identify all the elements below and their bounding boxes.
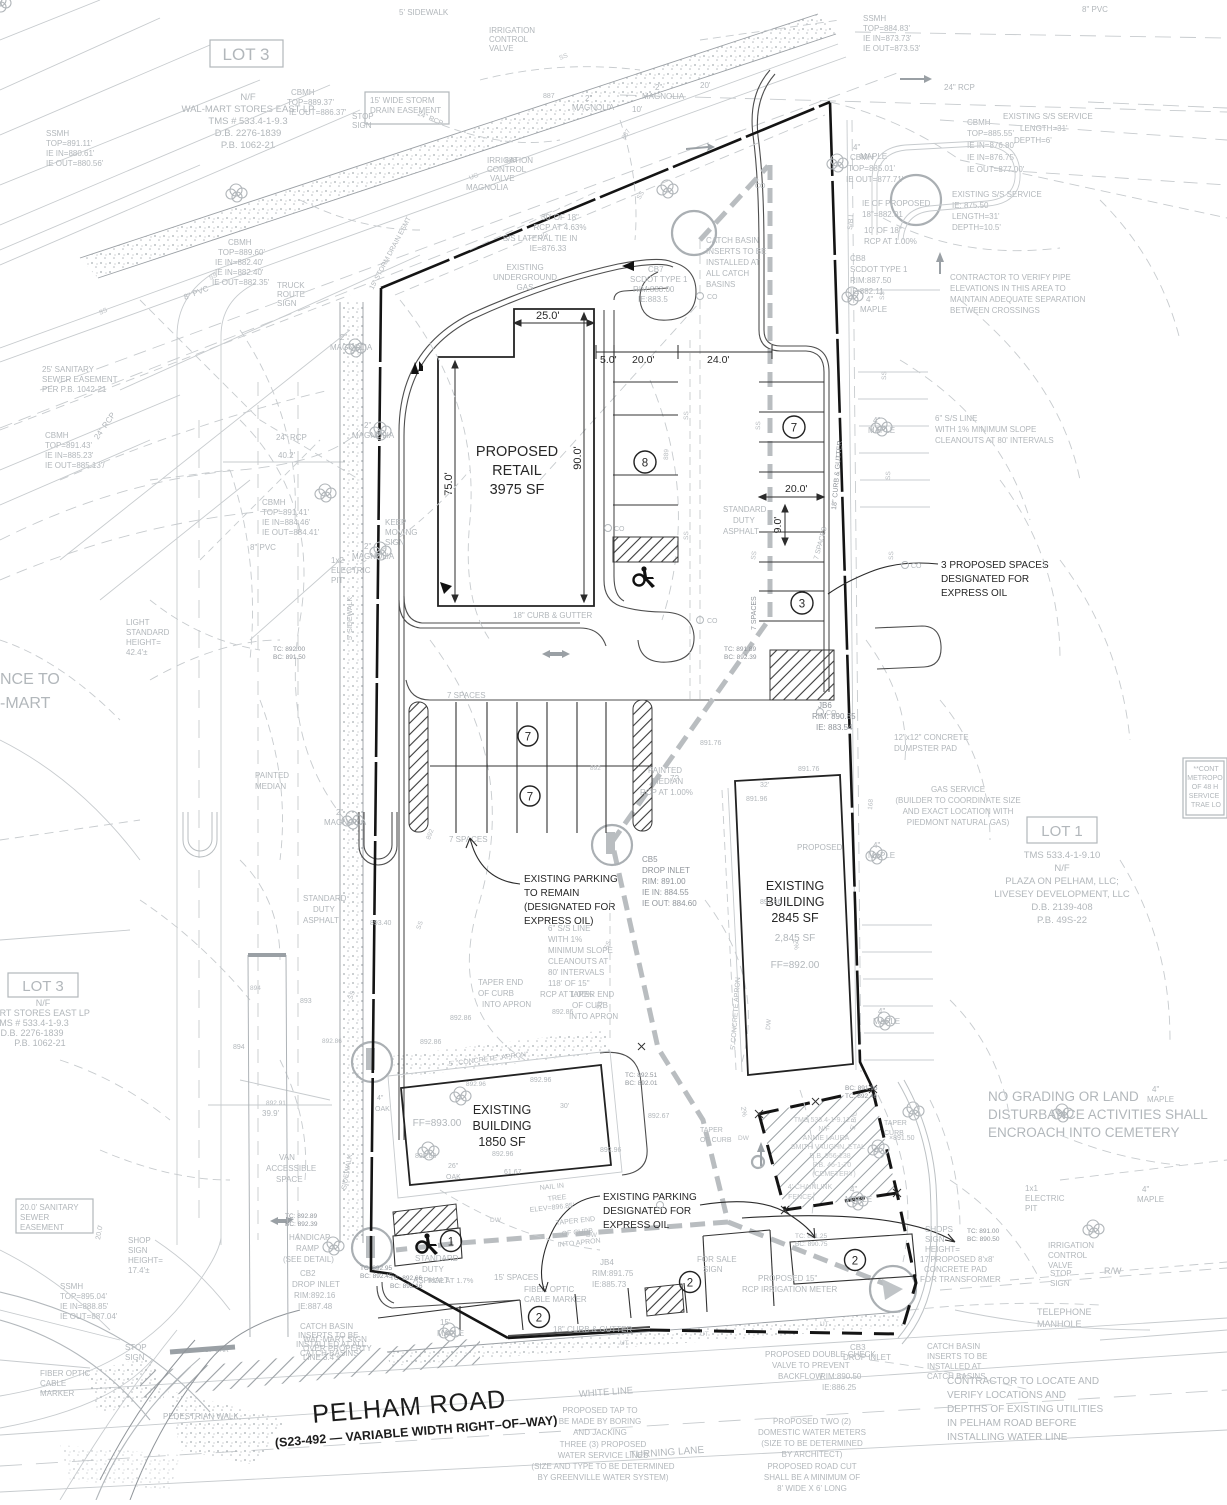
svg-text:24" RCP: 24" RCP xyxy=(944,83,975,92)
svg-text:EXISTING: EXISTING xyxy=(506,263,543,272)
svg-text:SSMH: SSMH xyxy=(46,129,69,138)
svg-text:TAPER END: TAPER END xyxy=(569,990,614,999)
svg-text:892.86: 892.86 xyxy=(420,1039,442,1046)
svg-text:1850 SF: 1850 SF xyxy=(478,1135,526,1149)
svg-text:892.67: 892.67 xyxy=(648,1113,670,1120)
svg-text:7 SPACES: 7 SPACES xyxy=(751,596,758,630)
svg-text:12"x12" CONCRETE: 12"x12" CONCRETE xyxy=(894,733,969,742)
svg-text:LINE 3.4'±: LINE 3.4'± xyxy=(303,1353,341,1362)
svg-text:75.0': 75.0' xyxy=(443,472,455,496)
svg-text:BC: 890.75: BC: 890.75 xyxy=(795,1241,828,1248)
svg-text:CATCH BASIN: CATCH BASIN xyxy=(706,236,759,245)
svg-text:GAS SERVICE: GAS SERVICE xyxy=(931,785,985,794)
svg-text:CATCH BASIN: CATCH BASIN xyxy=(927,1342,980,1351)
svg-text:DUTY: DUTY xyxy=(422,1265,444,1274)
svg-text:STOP: STOP xyxy=(1050,1269,1072,1278)
svg-text:PIEDMONT NATURAL GAS): PIEDMONT NATURAL GAS) xyxy=(907,818,1010,827)
svg-text:MAPLE: MAPLE xyxy=(868,426,895,435)
svg-text:2: 2 xyxy=(687,1278,693,1290)
svg-text:P.B. 1062-21: P.B. 1062-21 xyxy=(14,1038,65,1048)
svg-text:STOP: STOP xyxy=(125,1343,147,1352)
svg-text:PROPOSED: PROPOSED xyxy=(476,444,558,460)
svg-text:7 SPACES: 7 SPACES xyxy=(447,691,486,700)
svg-text:887: 887 xyxy=(543,93,555,100)
svg-text:JB4: JB4 xyxy=(600,1258,614,1267)
svg-text:UT: UT xyxy=(820,1321,829,1328)
svg-text:ENCROACH INTO CEMETERY: ENCROACH INTO CEMETERY xyxy=(988,1125,1180,1140)
svg-text:DUTY: DUTY xyxy=(733,516,755,525)
svg-text:TMS # 533.4-1-9.3: TMS # 533.4-1-9.3 xyxy=(208,116,287,127)
svg-text:IE IN=885.23': IE IN=885.23' xyxy=(45,451,94,460)
svg-text:ASPHALT: ASPHALT xyxy=(303,916,339,925)
svg-text:PAINTED: PAINTED xyxy=(255,771,289,780)
svg-text:4' CHAINLINK: 4' CHAINLINK xyxy=(788,1184,833,1191)
svg-text:40.2': 40.2' xyxy=(278,451,296,460)
svg-text:CBMH: CBMH xyxy=(262,498,286,507)
svg-text:MAPLE: MAPLE xyxy=(860,152,887,161)
svg-text:GAS: GAS xyxy=(517,283,534,292)
svg-text:PROPOSED TAP TO: PROPOSED TAP TO xyxy=(562,1406,637,1415)
svg-text:10': 10' xyxy=(632,105,643,114)
svg-text:894: 894 xyxy=(233,1044,245,1051)
svg-text:OVER PROPERTY: OVER PROPERTY xyxy=(303,1344,372,1353)
svg-text:SS: SS xyxy=(879,290,886,300)
svg-text:THREE (3) PROPOSED: THREE (3) PROPOSED xyxy=(560,1440,647,1449)
svg-text:FF=893.00: FF=893.00 xyxy=(413,1118,462,1129)
svg-text:N/F: N/F xyxy=(1054,863,1070,874)
svg-text:OAK: OAK xyxy=(375,1106,390,1113)
svg-text:FIBER OPTIC: FIBER OPTIC xyxy=(524,1285,574,1294)
svg-text:TOP=891.11': TOP=891.11' xyxy=(46,139,93,148)
svg-text:WITH 1% MINIMUM SLOPE: WITH 1% MINIMUM SLOPE xyxy=(935,425,1036,434)
svg-text:(SEE DETAIL): (SEE DETAIL) xyxy=(283,1255,334,1264)
svg-text:STANDARD: STANDARD xyxy=(415,1254,459,1263)
svg-text:CO: CO xyxy=(707,294,718,301)
svg-text:892: 892 xyxy=(590,765,601,772)
svg-text:TOP=891.41': TOP=891.41' xyxy=(262,508,309,517)
svg-text:18"=882.01: 18"=882.01 xyxy=(862,210,903,219)
svg-text:IE IN=876.80': IE IN=876.80' xyxy=(967,141,1016,150)
svg-text:8: 8 xyxy=(642,458,648,470)
svg-text:RIM:890.50: RIM:890.50 xyxy=(820,1372,862,1381)
svg-text:2": 2" xyxy=(364,421,371,430)
svg-text:PROPOSED TWO (2): PROPOSED TWO (2) xyxy=(773,1417,851,1426)
svg-text:IE IN: 884.55: IE IN: 884.55 xyxy=(642,888,689,897)
svg-text:8" PVC: 8" PVC xyxy=(1082,5,1108,14)
svg-text:CB3: CB3 xyxy=(850,1343,866,1352)
svg-text:BC: 890.50: BC: 890.50 xyxy=(967,1236,1000,1243)
svg-text:5.0': 5.0' xyxy=(600,354,617,366)
svg-text:42.4'±: 42.4'± xyxy=(126,648,148,657)
svg-text:PER P.B. 1042-21: PER P.B. 1042-21 xyxy=(42,385,107,394)
svg-text:17'PROPOSED 8'x8': 17'PROPOSED 8'x8' xyxy=(920,1255,994,1264)
svg-text:BC: 891.50: BC: 891.50 xyxy=(273,654,306,661)
svg-text:RIM:888.00: RIM:888.00 xyxy=(633,285,675,294)
svg-text:MAPLE: MAPLE xyxy=(1147,1095,1174,1104)
svg-text:TELEPHONE: TELEPHONE xyxy=(1037,1307,1092,1317)
svg-text:RCP AT 1.00%: RCP AT 1.00% xyxy=(864,237,917,246)
svg-text:S/B L: S/B L xyxy=(847,212,855,230)
svg-text:MAGNOLIA: MAGNOLIA xyxy=(642,92,685,101)
svg-text:1x2: 1x2 xyxy=(331,556,344,565)
svg-text:BC: 892.45: BC: 892.45 xyxy=(360,1273,393,1280)
svg-text:IE:886.25: IE:886.25 xyxy=(822,1383,857,1392)
svg-text:IE OUT=882.35': IE OUT=882.35' xyxy=(212,278,270,287)
svg-text:SS: SS xyxy=(881,370,888,380)
svg-text:SHOP: SHOP xyxy=(128,1236,151,1245)
svg-text:2845 SF: 2845 SF xyxy=(771,911,819,925)
svg-text:TC: 891.89: TC: 891.89 xyxy=(724,646,757,653)
svg-text:CONTRACTOR TO VERIFY PIPE: CONTRACTOR TO VERIFY PIPE xyxy=(950,273,1071,282)
svg-text:DEPTH=10.5': DEPTH=10.5' xyxy=(952,223,1001,232)
svg-text:892.96: 892.96 xyxy=(466,1081,486,1088)
svg-text:25.0': 25.0' xyxy=(536,310,560,322)
svg-text:7: 7 xyxy=(525,732,531,744)
svg-text:INSERTS TO BE: INSERTS TO BE xyxy=(927,1352,987,1361)
svg-text:D.B. 2139-408: D.B. 2139-408 xyxy=(1031,902,1092,913)
svg-text:ELECTRIC: ELECTRIC xyxy=(331,566,371,575)
svg-text:61.67: 61.67 xyxy=(504,1169,522,1176)
svg-text:KEEP: KEEP xyxy=(385,518,406,527)
svg-text:SIGN: SIGN xyxy=(125,1353,145,1362)
svg-text:N/F: N/F xyxy=(818,1126,829,1133)
svg-text:CO: CO xyxy=(911,563,922,570)
svg-text:RIM:887.50: RIM:887.50 xyxy=(850,276,892,285)
svg-text:SCDOT TYPE 1: SCDOT TYPE 1 xyxy=(850,265,908,274)
svg-text:894: 894 xyxy=(250,985,261,992)
svg-text:UNDERGROUND: UNDERGROUND xyxy=(493,273,557,282)
svg-text:TC: 892.89: TC: 892.89 xyxy=(285,1213,318,1220)
svg-text:BY ARCHITECT): BY ARCHITECT) xyxy=(782,1450,843,1459)
svg-text:VERIFY LOCATIONS AND: VERIFY LOCATIONS AND xyxy=(947,1390,1066,1401)
svg-text:UT: UT xyxy=(620,1340,629,1347)
svg-text:MART STORES EAST LP: MART STORES EAST LP xyxy=(0,1008,90,1018)
svg-text:BUILDING: BUILDING xyxy=(472,1119,531,1133)
svg-text:CBMH: CBMH xyxy=(45,431,69,440)
svg-text:WAL-MART SIGN: WAL-MART SIGN xyxy=(303,1335,367,1344)
svg-text:SPACE: SPACE xyxy=(276,1175,303,1184)
svg-text:2": 2" xyxy=(336,808,343,817)
svg-text:SIGN: SIGN xyxy=(277,299,297,308)
svg-text:DW: DW xyxy=(765,1018,773,1030)
svg-text:BC: 891.96: BC: 891.96 xyxy=(845,1085,878,1092)
svg-text:18" CURB & GUTTER: 18" CURB & GUTTER xyxy=(513,611,593,620)
svg-text:MAGNOLIA: MAGNOLIA xyxy=(352,552,395,561)
svg-text:DW: DW xyxy=(738,1135,750,1142)
svg-text:4": 4" xyxy=(873,416,880,425)
svg-text:IE OUT=877.71': IE OUT=877.71' xyxy=(846,175,904,184)
svg-text:P.B. 1062-21: P.B. 1062-21 xyxy=(221,140,275,151)
svg-text:7?: 7? xyxy=(670,774,679,783)
svg-text:4": 4" xyxy=(1152,1085,1159,1094)
svg-text:CB2: CB2 xyxy=(300,1269,316,1278)
svg-text:ANNIE LAURA: ANNIE LAURA xyxy=(803,1135,850,1142)
svg-text:BC: 892.39: BC: 892.39 xyxy=(724,654,757,661)
svg-text:(SIZE AND TYPE TO BE DETERMINE: (SIZE AND TYPE TO BE DETERMINED xyxy=(531,1462,674,1471)
svg-text:2": 2" xyxy=(585,94,592,103)
svg-text:MS # 533.4-1-9.3: MS # 533.4-1-9.3 xyxy=(0,1018,69,1028)
svg-text:MAGNOLIA: MAGNOLIA xyxy=(352,431,395,440)
svg-text:TOP=889.60': TOP=889.60' xyxy=(218,248,265,257)
svg-text:FOR SALE: FOR SALE xyxy=(697,1255,737,1264)
svg-text:NO GRADING OR LAND: NO GRADING OR LAND xyxy=(988,1089,1139,1104)
svg-text:LOT 3: LOT 3 xyxy=(223,45,270,64)
svg-text:TMS 533.4-1-9.12: TMS 533.4-1-9.12 xyxy=(794,1117,851,1124)
svg-text:CLEANOUTS AT 80' INTERVALS: CLEANOUTS AT 80' INTERVALS xyxy=(935,436,1054,445)
svg-text:MAGNOLIA: MAGNOLIA xyxy=(466,183,509,192)
svg-text:LOT 3: LOT 3 xyxy=(22,978,63,995)
svg-text:STANDARD: STANDARD xyxy=(126,628,170,637)
svg-text:PROPOSED 15": PROPOSED 15" xyxy=(758,1274,817,1283)
svg-text:IE IN=873.73': IE IN=873.73' xyxy=(863,34,912,43)
svg-text:PLAZA ON PELHAM, LLC;: PLAZA ON PELHAM, LLC; xyxy=(1005,876,1119,887)
svg-text:IE=876.33: IE=876.33 xyxy=(530,244,567,253)
svg-text:3975 SF: 3975 SF xyxy=(490,482,545,498)
svg-text:MAPLE: MAPLE xyxy=(437,1329,464,1338)
svg-text:5' SIDEWALK: 5' SIDEWALK xyxy=(347,597,354,640)
svg-text:IE:883.5: IE:883.5 xyxy=(638,295,668,304)
svg-text:MAGNOLIA: MAGNOLIA xyxy=(572,103,615,112)
svg-text:EXISTING: EXISTING xyxy=(766,879,824,893)
svg-text:IN PELHAM ROAD BEFORE: IN PELHAM ROAD BEFORE xyxy=(947,1418,1077,1429)
svg-text:24.0': 24.0' xyxy=(707,354,729,366)
svg-text:2: 2 xyxy=(852,1256,858,1268)
svg-text:CONTROL: CONTROL xyxy=(489,35,529,44)
svg-text:AND JACKING: AND JACKING xyxy=(573,1428,627,1437)
svg-text:4": 4" xyxy=(878,1007,885,1016)
svg-text:892.96: 892.96 xyxy=(530,1077,552,1084)
svg-text:4": 4" xyxy=(377,1095,384,1102)
svg-text:FF=892.00: FF=892.00 xyxy=(771,960,820,971)
svg-text:IRRIGATION: IRRIGATION xyxy=(1048,1241,1094,1250)
svg-text:SS: SS xyxy=(888,550,895,560)
svg-text:TAPER END: TAPER END xyxy=(478,978,523,987)
svg-text:RETAIL: RETAIL xyxy=(492,463,542,479)
svg-text:DESIGNATED FOR: DESIGNATED FOR xyxy=(603,1206,691,1217)
svg-text:30': 30' xyxy=(560,1103,569,1110)
svg-text:SCDOT TYPE 1: SCDOT TYPE 1 xyxy=(630,275,688,284)
svg-text:EXISTING S/S SERVICE: EXISTING S/S SERVICE xyxy=(952,190,1042,199)
svg-text:80' INTERVALS: 80' INTERVALS xyxy=(548,968,604,977)
svg-text:P.B. 49S-22: P.B. 49S-22 xyxy=(1037,915,1087,926)
svg-text:PIT: PIT xyxy=(1025,1204,1038,1213)
svg-text:EXISTING PARKING: EXISTING PARKING xyxy=(524,874,618,885)
svg-text:TOP=884.83': TOP=884.83' xyxy=(863,24,910,33)
svg-text:SSMH: SSMH xyxy=(863,14,886,23)
svg-text:INSTALLING WATER LINE: INSTALLING WATER LINE xyxy=(947,1432,1068,1443)
svg-text:CATCH BASIN: CATCH BASIN xyxy=(300,1322,353,1331)
svg-text:MAGNOLIA: MAGNOLIA xyxy=(330,343,373,352)
svg-text:891.76: 891.76 xyxy=(700,740,722,747)
svg-text:(SIZE TO BE DETERMINED: (SIZE TO BE DETERMINED xyxy=(761,1439,863,1448)
svg-text:MAPLE: MAPLE xyxy=(873,1017,900,1026)
svg-text:ROUTE: ROUTE xyxy=(277,290,305,299)
svg-text:8" PVC: 8" PVC xyxy=(250,543,276,552)
svg-text:OF CURB: OF CURB xyxy=(478,989,514,998)
svg-text:TOP=885.01': TOP=885.01' xyxy=(848,164,895,173)
svg-text:MAPLE: MAPLE xyxy=(845,1195,872,1204)
svg-text:20.0': 20.0' xyxy=(632,354,654,366)
svg-text:IE:887.48: IE:887.48 xyxy=(298,1302,333,1311)
svg-text:VALVE TO PREVENT: VALVE TO PREVENT xyxy=(772,1361,850,1370)
svg-text:15' SPACES: 15' SPACES xyxy=(494,1273,539,1282)
svg-text:IE OUT=886.37': IE OUT=886.37' xyxy=(289,108,347,117)
svg-text:DW: DW xyxy=(490,1217,502,1224)
svg-text:FIBER OPTIC: FIBER OPTIC xyxy=(40,1369,90,1378)
svg-text:STANDARD: STANDARD xyxy=(723,505,767,514)
svg-text:RAMP: RAMP xyxy=(296,1244,319,1253)
svg-text:IE IN=880.61': IE IN=880.61' xyxy=(46,149,95,158)
svg-text:EXPRESS OIL: EXPRESS OIL xyxy=(941,588,1008,599)
svg-text:CABLE MARKER: CABLE MARKER xyxy=(524,1295,587,1304)
svg-text:TRAE LO: TRAE LO xyxy=(1191,802,1222,809)
svg-text:N/F: N/F xyxy=(36,998,51,1008)
svg-text:INTO APRON: INTO APRON xyxy=(482,1000,531,1009)
svg-text:7: 7 xyxy=(527,792,533,804)
svg-text:HANDICAP: HANDICAP xyxy=(289,1233,330,1242)
svg-text:CONTROL: CONTROL xyxy=(487,165,527,174)
svg-text:889: 889 xyxy=(663,449,670,460)
svg-text:3 PROPOSED SPACES: 3 PROPOSED SPACES xyxy=(941,560,1049,571)
svg-text:DUTY: DUTY xyxy=(313,905,335,914)
svg-text:SMITH VAUGHN, ETAL: SMITH VAUGHN, ETAL xyxy=(791,1144,865,1151)
svg-text:SIGN: SIGN xyxy=(128,1246,148,1255)
svg-text:CB8: CB8 xyxy=(850,254,866,263)
svg-text:LOT 1: LOT 1 xyxy=(1041,823,1082,840)
svg-text:(BUILDER TO COORDINATE SIZE: (BUILDER TO COORDINATE SIZE xyxy=(895,796,1020,805)
svg-text:DW: DW xyxy=(586,1232,598,1239)
svg-text:IE OUT=873.53': IE OUT=873.53' xyxy=(863,44,921,53)
svg-text:6" S/S LINE: 6" S/S LINE xyxy=(935,414,977,423)
svg-text:20': 20' xyxy=(700,81,711,90)
svg-text:HEIGHT=: HEIGHT= xyxy=(126,638,161,647)
svg-text:IRRIGATION: IRRIGATION xyxy=(489,26,535,35)
svg-text:(DESIGNATED FOR: (DESIGNATED FOR xyxy=(524,902,615,913)
svg-text:8' WIDE X 6' LONG: 8' WIDE X 6' LONG xyxy=(777,1484,847,1493)
svg-text:892.86: 892.86 xyxy=(450,1015,472,1022)
svg-text:1: 1 xyxy=(448,1237,454,1249)
svg-text:OF 48 H: OF 48 H xyxy=(1192,784,1218,791)
svg-text:MAINTAIN ADEQUATE SEPARATION: MAINTAIN ADEQUATE SEPARATION xyxy=(950,295,1086,304)
svg-text:MAGNOLIA: MAGNOLIA xyxy=(324,818,367,827)
svg-text:OAK: OAK xyxy=(446,1174,461,1181)
svg-text:DROP INLET: DROP INLET xyxy=(843,1353,891,1362)
svg-text:VALVE: VALVE xyxy=(489,44,514,53)
svg-text:39.9': 39.9' xyxy=(262,1109,280,1118)
svg-text:MAPLE: MAPLE xyxy=(860,305,887,314)
svg-text:892.96: 892.96 xyxy=(600,1147,622,1154)
svg-text:15': 15' xyxy=(440,1318,451,1327)
svg-text:N/F: N/F xyxy=(240,92,256,103)
svg-text:RCP AT 1.00%: RCP AT 1.00% xyxy=(640,788,693,797)
svg-text:DROP INLET: DROP INLET xyxy=(642,866,690,875)
svg-text:SERVICE: SERVICE xyxy=(1189,793,1220,800)
svg-text:IE OUT=884.41': IE OUT=884.41' xyxy=(262,528,320,537)
svg-text:20.0': 20.0' xyxy=(785,483,807,495)
svg-text:DISTURBANCE ACTIVITIES SHALL: DISTURBANCE ACTIVITIES SHALL xyxy=(988,1107,1208,1122)
svg-text:**CONT: **CONT xyxy=(1193,766,1219,773)
svg-text:888: 888 xyxy=(505,157,517,164)
svg-text:CATCH BASINS: CATCH BASINS xyxy=(927,1372,986,1381)
svg-text:IE:885.73: IE:885.73 xyxy=(592,1280,627,1289)
svg-text:TOP=895.04': TOP=895.04' xyxy=(60,1292,107,1301)
svg-text:SEWER: SEWER xyxy=(20,1213,50,1222)
svg-text:4": 4" xyxy=(873,841,880,850)
svg-text:CURB: CURB xyxy=(884,1130,904,1137)
svg-text:168: 168 xyxy=(867,798,875,810)
svg-text:2": 2" xyxy=(655,83,662,92)
svg-text:CABLE: CABLE xyxy=(40,1379,66,1388)
svg-text:CO: CO xyxy=(826,710,837,717)
svg-text:IE OUT=880.56': IE OUT=880.56' xyxy=(46,159,104,168)
svg-text:2": 2" xyxy=(364,542,371,551)
svg-text:17.4'±: 17.4'± xyxy=(128,1266,150,1275)
svg-text:10' OF 18": 10' OF 18" xyxy=(864,226,902,235)
svg-text:LENGTH=31': LENGTH=31' xyxy=(952,212,1000,221)
svg-text:TOP=889.37': TOP=889.37' xyxy=(287,98,334,107)
svg-text:PROPOSED ROAD CUT: PROPOSED ROAD CUT xyxy=(767,1462,856,1471)
svg-text:BACKFLOW: BACKFLOW xyxy=(778,1372,823,1381)
svg-text:RCP AT 1.7%: RCP AT 1.7% xyxy=(428,1276,474,1285)
svg-text:893.40: 893.40 xyxy=(370,920,392,927)
svg-text:EXISTING S/S SERVICE: EXISTING S/S SERVICE xyxy=(1003,112,1093,121)
svg-text:PIT: PIT xyxy=(331,576,344,585)
svg-text:AND EXACT LOCATION WITH: AND EXACT LOCATION WITH xyxy=(903,807,1014,816)
svg-text:26": 26" xyxy=(448,1163,459,1170)
svg-text:IE OUT=885.13'/: IE OUT=885.13'/ xyxy=(45,461,105,470)
svg-text:SIGN: SIGN xyxy=(925,1235,945,1244)
svg-text:RCP IRRIGATION METER: RCP IRRIGATION METER xyxy=(742,1285,837,1294)
svg-text:TAPER: TAPER xyxy=(884,1120,907,1127)
svg-text:IE IN=876.75': IE IN=876.75' xyxy=(967,153,1016,162)
svg-text:STOP: STOP xyxy=(352,112,374,121)
svg-text:WITH 1%: WITH 1% xyxy=(548,935,582,944)
svg-text:IE OUT: 884.60: IE OUT: 884.60 xyxy=(642,899,697,908)
svg-text:IE IN=882.40': IE IN=882.40' xyxy=(215,268,264,277)
svg-text:CONTROL: CONTROL xyxy=(1048,1251,1088,1260)
svg-text:CO: CO xyxy=(614,526,625,533)
svg-text:1x1: 1x1 xyxy=(1025,1184,1038,1193)
svg-text:18" CURB & GUTTER: 18" CURB & GUTTER xyxy=(553,1325,633,1334)
svg-text:SS: SS xyxy=(683,410,690,420)
svg-text:118' OF 15": 118' OF 15" xyxy=(548,979,590,988)
svg-text:BC: 892.16: BC: 892.16 xyxy=(390,1283,423,1290)
svg-text:MEDIAN: MEDIAN xyxy=(255,782,286,791)
svg-text:TC: 892.66: TC: 892.66 xyxy=(390,1275,423,1282)
svg-text:RIM:892.16: RIM:892.16 xyxy=(294,1291,336,1300)
svg-text:SEWER EASEMENT: SEWER EASEMENT xyxy=(42,375,118,384)
svg-text:ASPHALT: ASPHALT xyxy=(723,527,759,536)
svg-text:15' WIDE STORM: 15' WIDE STORM xyxy=(370,96,435,105)
svg-text:TMS 533.4-1-9.10: TMS 533.4-1-9.10 xyxy=(1024,850,1101,861)
svg-text:891.96: 891.96 xyxy=(746,796,768,803)
svg-text:TAPER: TAPER xyxy=(700,1127,723,1134)
svg-text:5' SIDEWALK: 5' SIDEWALK xyxy=(399,8,449,17)
svg-text:TC: 891.25: TC: 891.25 xyxy=(795,1233,828,1240)
svg-text:3: 3 xyxy=(799,599,805,611)
svg-text:4": 4" xyxy=(850,1185,857,1194)
svg-text:DROP INLET: DROP INLET xyxy=(292,1280,340,1289)
svg-text:UT: UT xyxy=(700,1331,709,1338)
svg-text:EXPRESS OIL: EXPRESS OIL xyxy=(603,1220,670,1231)
svg-text:892.86: 892.86 xyxy=(322,1038,342,1045)
svg-text:SS: SS xyxy=(885,470,892,480)
svg-text:EASEMENT: EASEMENT xyxy=(20,1223,64,1232)
svg-text:NCE TO: NCE TO xyxy=(0,671,60,688)
svg-text:INTO APRON: INTO APRON xyxy=(569,1012,618,1021)
svg-text:SS: SS xyxy=(683,530,690,540)
svg-text:4": 4" xyxy=(1142,1185,1149,1194)
